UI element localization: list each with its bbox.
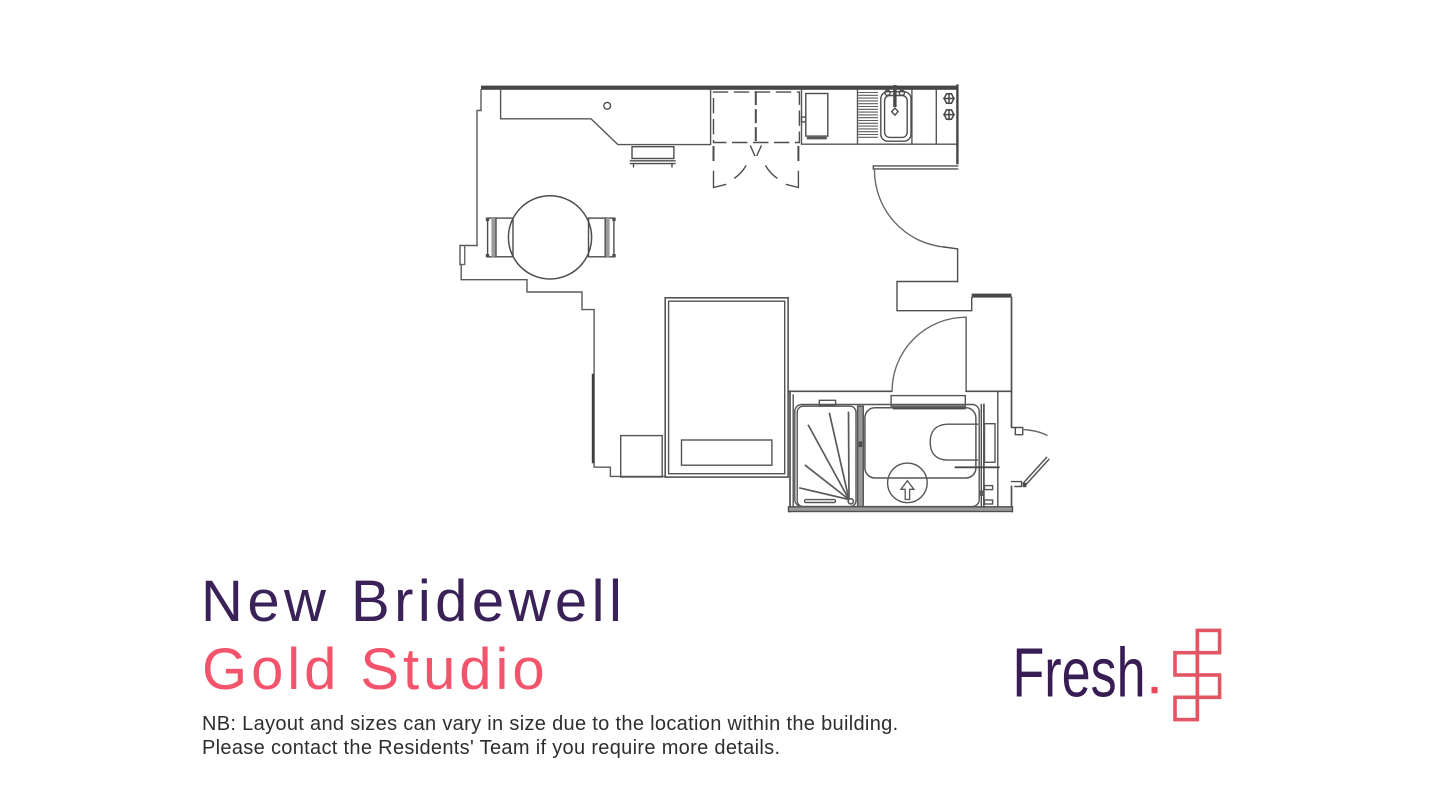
svg-text:Fresh: Fresh: [1013, 634, 1146, 712]
